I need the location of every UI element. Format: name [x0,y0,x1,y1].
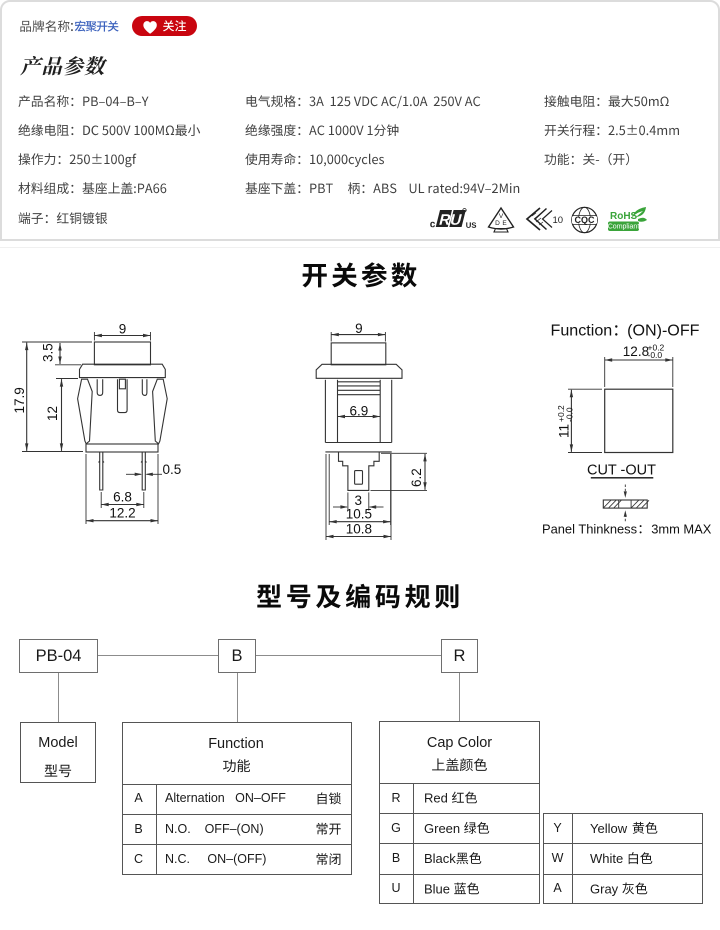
svg-text:3.5: 3.5 [41,343,56,362]
svg-text:CUT -OUT: CUT -OUT [587,463,656,479]
svg-text:Green: Green [424,821,460,836]
svg-text:12: 12 [45,406,60,421]
svg-text:Blue: Blue [424,881,450,896]
svg-text:0.5: 0.5 [163,462,182,477]
svg-text:10.5: 10.5 [346,507,372,522]
svg-text:CQC: CQC [575,215,596,225]
svg-text:V: V [499,213,504,220]
svg-text:Black: Black [424,851,456,866]
svg-text:Panel Thinkness: Panel Thinkness [542,521,637,536]
svg-text:10: 10 [553,215,564,226]
svg-text:9: 9 [119,322,127,337]
svg-text:E: E [502,220,507,227]
svg-text:3mm MAX: 3mm MAX [651,521,712,536]
svg-text:Red: Red [424,791,448,806]
svg-text:6.8: 6.8 [113,490,132,505]
svg-text:D: D [495,220,500,227]
svg-text:(ON)-OFF: (ON)-OFF [627,322,700,340]
svg-text:11: 11 [557,424,572,438]
svg-text:9: 9 [355,321,363,336]
svg-text:17.9: 17.9 [12,387,27,413]
svg-text:12.8: 12.8 [623,344,649,359]
svg-text:Compliant: Compliant [608,224,640,231]
svg-text:-0.0: -0.0 [648,350,663,360]
svg-text:12.2: 12.2 [109,506,135,521]
svg-text:Function: Function [551,322,613,340]
svg-text:6.2: 6.2 [409,468,424,487]
svg-text:RoHS: RoHS [610,211,638,222]
svg-text:Gray: Gray [590,881,619,896]
svg-text:Yellow: Yellow [590,821,628,836]
svg-text:10.8: 10.8 [346,522,372,537]
svg-text:6.9: 6.9 [350,403,369,418]
svg-text:-0.0: -0.0 [565,407,575,422]
svg-text:White: White [590,851,623,866]
